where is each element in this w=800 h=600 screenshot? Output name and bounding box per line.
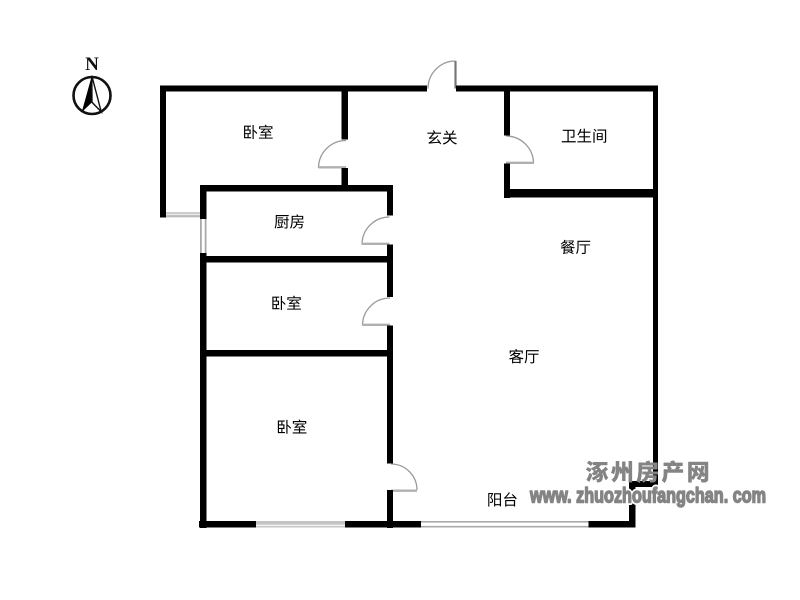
- svg-text:www. zhuozhoufangchan. com: www. zhuozhoufangchan. com: [529, 485, 766, 508]
- svg-text:N: N: [85, 54, 99, 75]
